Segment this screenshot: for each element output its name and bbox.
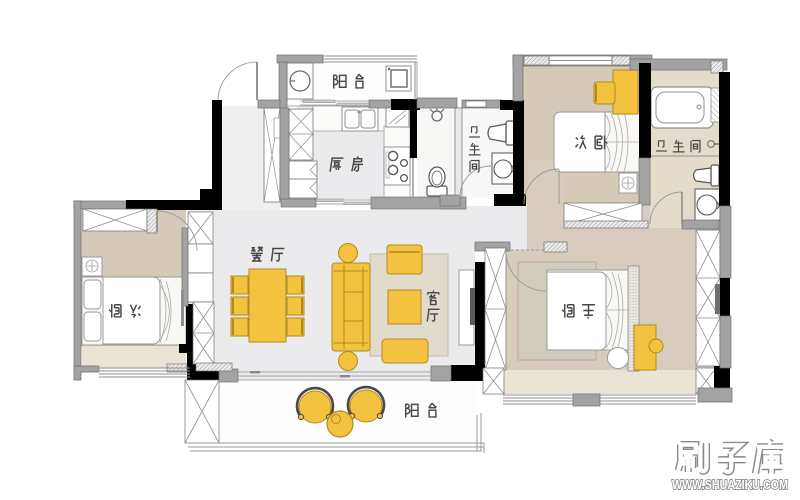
svg-text:WWW.SHUAZIKU.COM: WWW.SHUAZIKU.COM bbox=[672, 477, 788, 492]
